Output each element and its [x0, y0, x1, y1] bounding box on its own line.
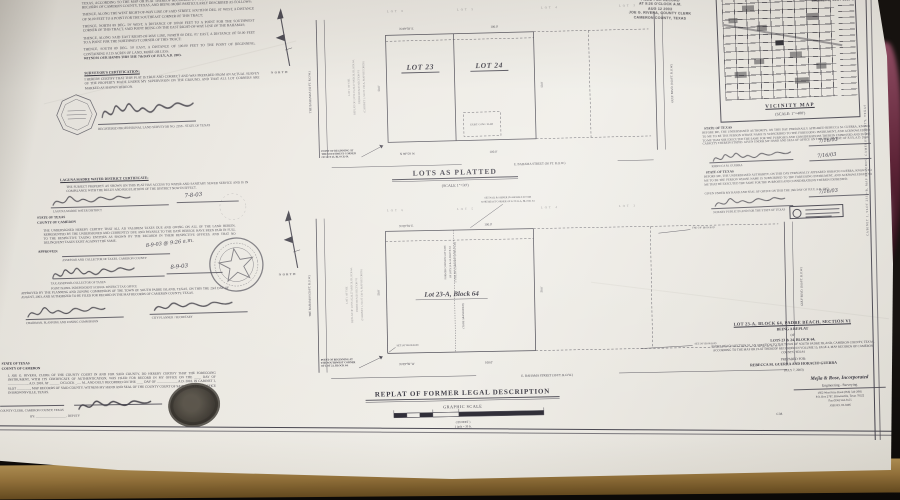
svg-text:PADRE BEACH SECTION VI: PADRE BEACH SECTION VI: [357, 70, 361, 104]
left-road-label: THE BAHAMAS (50 FT. R.O.W.): [307, 71, 312, 113]
plat1-scale: (SCALE 1"=30'): [442, 182, 470, 188]
plat2-replat-side-note: LOT 1 OF THE REPLAT OF LOTS 25,26,27 AND…: [345, 267, 364, 323]
north-label: NORTH: [271, 70, 289, 75]
existing-building: EXIST. CONC. SLAB: [463, 112, 501, 137]
adjacent-lot-label: LOT 6: [387, 9, 405, 13]
stamp-line: CABINET 1, SLOT 2319-B: [792, 0, 874, 3]
map-block: [728, 18, 737, 23]
paper-sheet: BEING THE NORTHEASTERLY ONE-HALF (NE 1/2…: [0, 0, 900, 500]
bottom-bearing-dim: N 89°59' W: [399, 362, 414, 366]
ne-corner-note: SET NAIL & SHINER IN ASPHALT AT THE NORT…: [470, 196, 536, 228]
surveyor-certification-header: SURVEYOR'S CERTIFICATION:: [84, 69, 140, 75]
surveyor-signature: [99, 92, 200, 123]
top-length-dim: 100.0': [490, 25, 498, 29]
bottom-length-dim: 100.0': [489, 150, 497, 154]
svg-text:LOT 5: LOT 5: [457, 207, 475, 211]
adjacent-lot-label: LOT 4: [541, 5, 559, 9]
approved-label: APPROVED:: [38, 249, 58, 254]
signature-rule: [0, 405, 64, 407]
svg-text:OF LOTS 23 & 24, BLOCK 64: OF LOTS 23 & 24, BLOCK 64: [449, 246, 453, 279]
plat1-roads: [316, 12, 665, 158]
notary-ack-section: STATE OF TEXAS BEFORE ME, THE UNDERSIGNE…: [696, 114, 891, 238]
map-block: [790, 51, 802, 57]
top-bearing-dim: N 89°59' E: [399, 27, 413, 31]
left-depth-dim: 50.0': [376, 289, 380, 295]
pob-note: POINT OF BEGINNING AT THE SOUTHWEST CORN…: [321, 149, 359, 160]
plat1-parcel: [386, 29, 652, 142]
map-block: [816, 62, 826, 68]
surveyor-octagon-seal: [53, 92, 101, 138]
county-header: COUNTY OF CAMERON: [2, 366, 41, 371]
street-label: E. BAHAMA STREET (30 FT. R.O.W.): [521, 373, 573, 378]
adjacent-lot-label: LOT 5: [457, 7, 475, 11]
svg-text:REPLAT OF LOTS 25,26,27 AND 28: REPLAT OF LOTS 25,26,27 AND 28, BLOCK 64…: [352, 59, 356, 115]
svg-text:LOT 4: LOT 4: [541, 205, 559, 209]
street-label: E. BAHAMA STREET (30 FT. R.O.W.): [514, 161, 566, 166]
bottom-bearing-dim: N 89°59' W: [400, 152, 415, 156]
lot-23-label: LOT 23: [405, 62, 434, 72]
pob-leader: [361, 145, 383, 157]
state-header: STATE OF TEXAS: [2, 361, 30, 365]
plat2-adjacent-lot-labels: LOT 6 LOT 5 LOT 4 LOT 3: [387, 204, 637, 213]
stamp-line: [806, 215, 832, 217]
graphic-scale-label: GRAPHIC SCALE: [443, 404, 482, 410]
water-district-caption: LAGUNA MADRE WATER DISTRICT: [53, 208, 102, 213]
water-approval-date: 7-8-03: [184, 192, 202, 200]
faint-seal-arc: [212, 191, 253, 222]
pz-caption-1: CHAIRMAN, PLANNING AND ZONING COMMISSION: [26, 319, 99, 325]
notary-stamp-box: [789, 204, 843, 219]
owner-dedication-section: BEING THE NORTHEASTERLY ONE-HALF (NE 1/2…: [43, 0, 263, 144]
top-bearing-dim: N 89°59' E: [399, 224, 413, 228]
stamp-line: [805, 208, 839, 210]
state-header: STATE OF TEXAS: [37, 215, 65, 220]
svg-text:SET 5/8" IRON ROD: SET 5/8" IRON ROD: [397, 344, 419, 347]
graphic-scale-bar: [394, 407, 544, 417]
right-road-label: GULF BLVD. (100 FT. R.O.W.): [799, 267, 804, 306]
vicinity-map-beach-strip: [837, 0, 857, 96]
svg-text:(CABINET 1, SLOT 138-A, MAP RE: (CABINET 1, SLOT 138-A, MAP RECORDS): [360, 269, 364, 320]
pob-note: POINT OF BEGINNING AT THE SOUTHWEST CORN…: [321, 358, 359, 368]
subject-lot-marker: [775, 40, 783, 45]
dedication-paragraphs: BEING THE NORTHEASTERLY ONE-HALF (NE 1/2…: [81, 0, 255, 56]
clerk-caption-1: COUNTY CLERK, CAMERON COUNTY, TEXAS: [0, 408, 64, 413]
svg-text:LOT 6: LOT 6: [387, 208, 405, 212]
svg-text:LOT 3: LOT 3: [619, 204, 637, 208]
date-rule: [809, 194, 869, 197]
top-length-dim: 100.0': [484, 222, 492, 226]
svg-text:EXIST. CONC. SLAB: EXIST. CONC. SLAB: [470, 123, 493, 127]
map-block: [795, 77, 809, 84]
plat1-replat-side-note: LOT 1 OF THE REPLAT OF LOTS 25,26,27 AND…: [347, 59, 366, 115]
map-block: [742, 5, 754, 11]
plat-drawing-ink: BEING THE NORTHEASTERLY ONE-HALF (NE 1/2…: [0, 0, 900, 500]
stamp-seal-circle: [792, 209, 801, 218]
pob-leader: [359, 356, 383, 368]
county-clerk-section: STATE OF TEXAS COUNTY OF CAMERON I, JOE …: [0, 354, 251, 435]
svg-text:LOT 1 OF THE: LOT 1 OF THE: [348, 78, 351, 96]
svg-text:(CABINET 1, SLOT 138-A, MAP RE: (CABINET 1, SLOT 138-A, MAP RECORDS): [362, 61, 366, 112]
recording-stamp: FILED FOR RECORD AT 9:26 O'CLOCK A.M. AU…: [596, 0, 725, 33]
approvals-section: LAGUNA MADRE WATER DISTRICT CERTIFICATE:…: [16, 165, 270, 337]
water-district-header: LAGUNA MADRE WATER DISTRICT CERTIFICATE:: [60, 176, 149, 182]
svg-text:LOT 1 OF THE: LOT 1 OF THE: [345, 286, 348, 304]
svg-text:REPLAT OF LOTS 25,26,27 AND 28: REPLAT OF LOTS 25,26,27 AND 28, BLOCK 64…: [350, 267, 354, 323]
owner-name-caption: REBECCA M. GUERRA: [711, 163, 742, 168]
left-road-label: THE BAHAMAS (50 FT. R.O.W.): [307, 275, 312, 317]
vicinity-map-grid: [722, 0, 838, 100]
map-block: [735, 72, 747, 78]
north-arrow-icon: [271, 6, 299, 71]
left-depth-dim: 50.0': [377, 85, 381, 91]
tax-collector-signature: [50, 260, 138, 282]
bottom-length-dim: 100.0': [485, 360, 493, 364]
svg-text:NORTHEAST CORNER OF LOT 23-A,: NORTHEAST CORNER OF LOT 23-A, BLOCK 64: [481, 200, 535, 204]
tax-date: 8-9-03: [170, 263, 188, 271]
clerk-caption-2: BY: ____________________ , DEPUTY: [30, 414, 80, 419]
right-road-label: GULF BLVD. (100 FT. R.O.W.): [669, 64, 674, 103]
stamp-line: [805, 212, 839, 214]
plat1-title: LOTS AS PLATTED: [413, 167, 498, 178]
cm-mark: C.M.: [776, 412, 783, 416]
abandon-note: (TO BE ABANDONED): [462, 303, 465, 328]
county-header: COUNTY OF CAMERON: [37, 220, 76, 225]
vicinity-map: VICINITY MAP (SCALE: 1"=400'): [703, 0, 870, 129]
lot-24-label: LOT 24: [474, 61, 503, 71]
svg-text:FORMER COMMON LOT LINE: FORMER COMMON LOT LINE: [444, 245, 448, 280]
north-label: NORTH: [279, 272, 297, 277]
lot-23a-label: Lot 23-A, Block 64: [423, 290, 479, 299]
svg-text:PADRE BEACH SECTION VI: PADRE BEACH SECTION VI: [355, 278, 359, 312]
vicinity-map-frame: VICINITY MAP (SCALE: 1"=400'): [715, 0, 860, 123]
photo-of-plat-document: BEING THE NORTHEASTERLY ONE-HALF (NE 1/2…: [0, 0, 900, 500]
map-block: [754, 59, 764, 64]
pz-caption-2: CITY PLANNER / SECRETARY: [152, 315, 193, 320]
right-depth-dim: 50.0': [540, 81, 544, 87]
svg-text:5' UTILITY EASEMENT (THIS PLAT: 5' UTILITY EASEMENT (THIS PLAT): [454, 242, 458, 283]
right-depth-dim: 50.0': [539, 286, 543, 292]
